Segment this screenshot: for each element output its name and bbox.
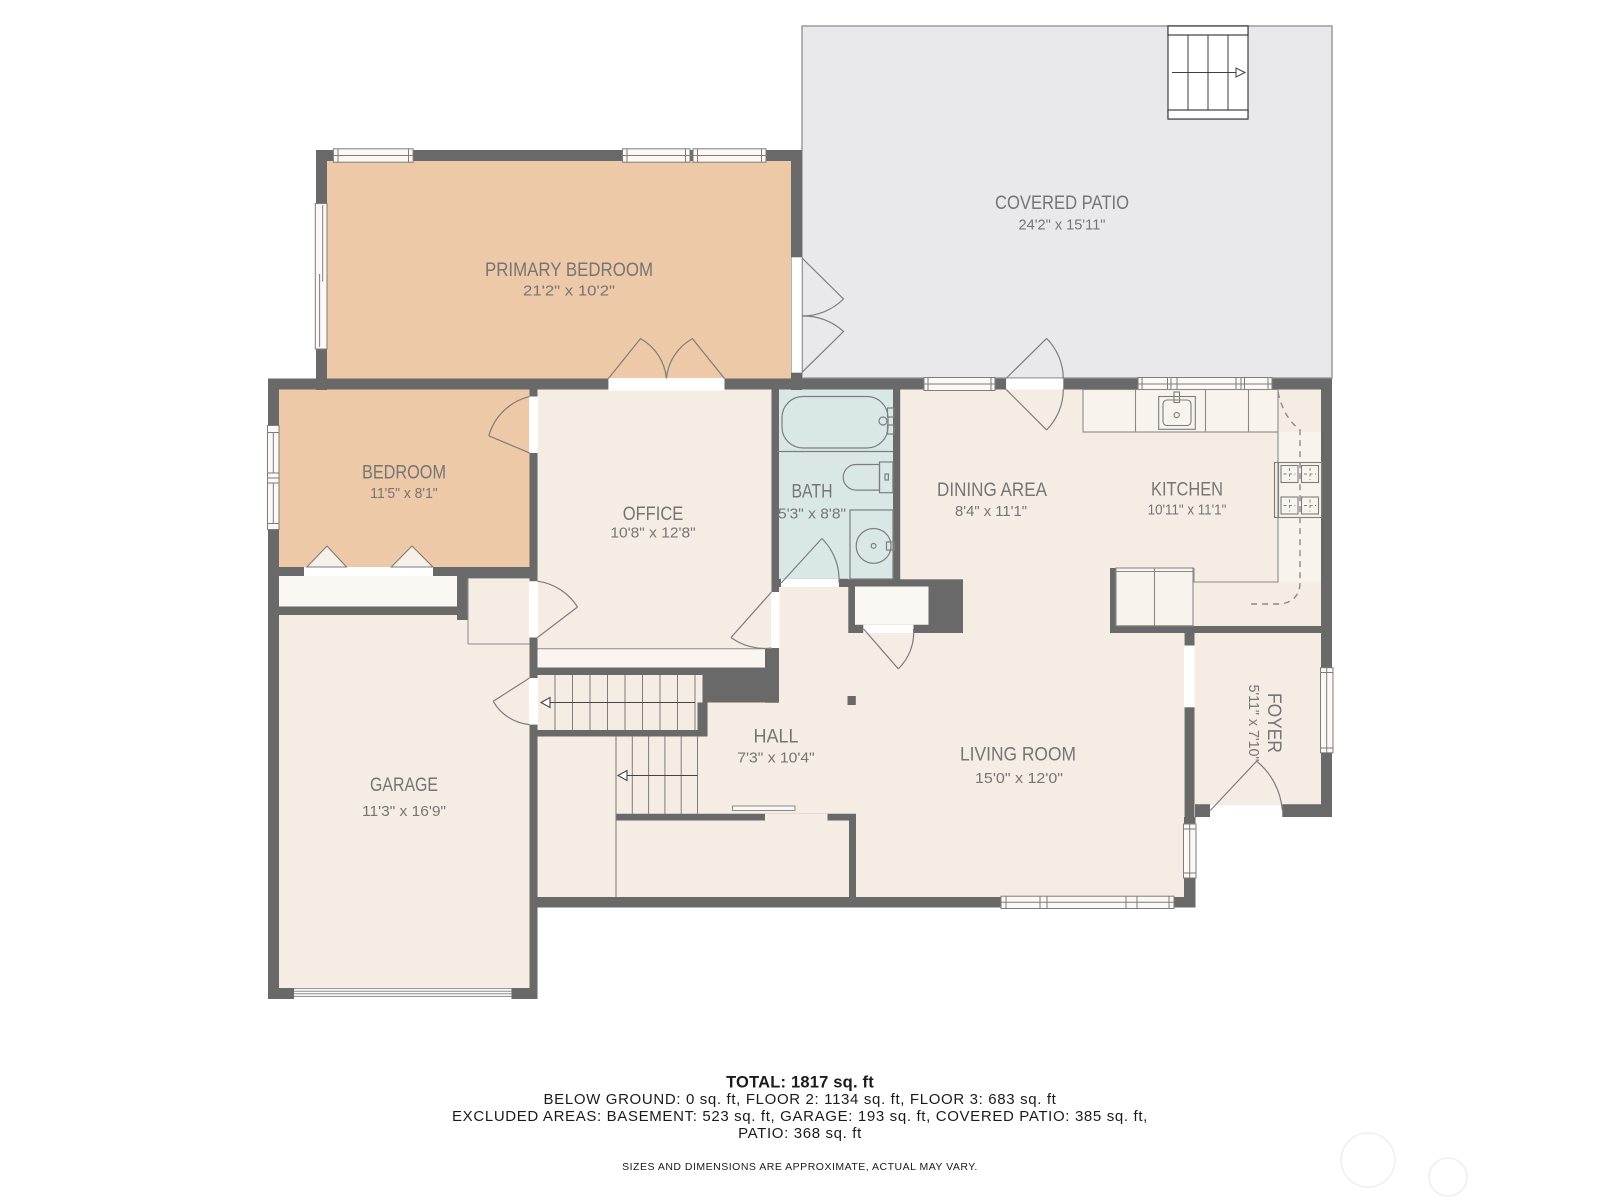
svg-text:PRIMARY BEDROOM: PRIMARY BEDROOM <box>485 259 653 281</box>
svg-text:8'4" x 11'1": 8'4" x 11'1" <box>955 504 1027 520</box>
svg-text:24'2" x 15'11": 24'2" x 15'11" <box>1019 218 1106 234</box>
svg-text:PATIO: 368 sq. ft: PATIO: 368 sq. ft <box>738 1125 862 1142</box>
svg-text:BEDROOM: BEDROOM <box>362 461 446 483</box>
svg-text:BATH: BATH <box>792 481 833 503</box>
svg-text:FOYER: FOYER <box>1263 693 1285 753</box>
svg-text:21'2" x 10'2": 21'2" x 10'2" <box>523 284 615 300</box>
svg-text:COVERED PATIO: COVERED PATIO <box>995 192 1129 214</box>
svg-text:15'0" x 12'0": 15'0" x 12'0" <box>975 771 1063 787</box>
svg-text:SIZES AND DIMENSIONS ARE APPRO: SIZES AND DIMENSIONS ARE APPROXIMATE, AC… <box>622 1161 978 1173</box>
svg-text:5'3" x 8'8": 5'3" x 8'8" <box>778 507 846 523</box>
svg-text:KITCHEN: KITCHEN <box>1151 478 1223 500</box>
svg-text:GARAGE: GARAGE <box>370 774 438 796</box>
svg-text:HALL: HALL <box>754 726 799 748</box>
svg-text:TOTAL: 1817 sq. ft: TOTAL: 1817 sq. ft <box>726 1074 874 1092</box>
svg-text:7'3" x 10'4": 7'3" x 10'4" <box>737 751 815 767</box>
svg-text:LIVING ROOM: LIVING ROOM <box>960 743 1076 765</box>
svg-text:5'11" x 7'10": 5'11" x 7'10" <box>1245 685 1261 762</box>
svg-text:11'3" x 16'9": 11'3" x 16'9" <box>362 804 446 820</box>
svg-text:10'11" x 11'1": 10'11" x 11'1" <box>1148 503 1227 519</box>
svg-text:11'5" x 8'1": 11'5" x 8'1" <box>370 486 438 502</box>
svg-text:10'8" x 12'8": 10'8" x 12'8" <box>610 526 695 542</box>
svg-text:BELOW GROUND: 0 sq. ft, FLOOR: BELOW GROUND: 0 sq. ft, FLOOR 2: 1134 sq… <box>544 1091 1057 1108</box>
svg-text:OFFICE: OFFICE <box>623 503 684 525</box>
svg-text:DINING AREA: DINING AREA <box>937 479 1047 501</box>
svg-text:EXCLUDED AREAS: BASEMENT: 523: EXCLUDED AREAS: BASEMENT: 523 sq. ft, GA… <box>452 1108 1148 1125</box>
